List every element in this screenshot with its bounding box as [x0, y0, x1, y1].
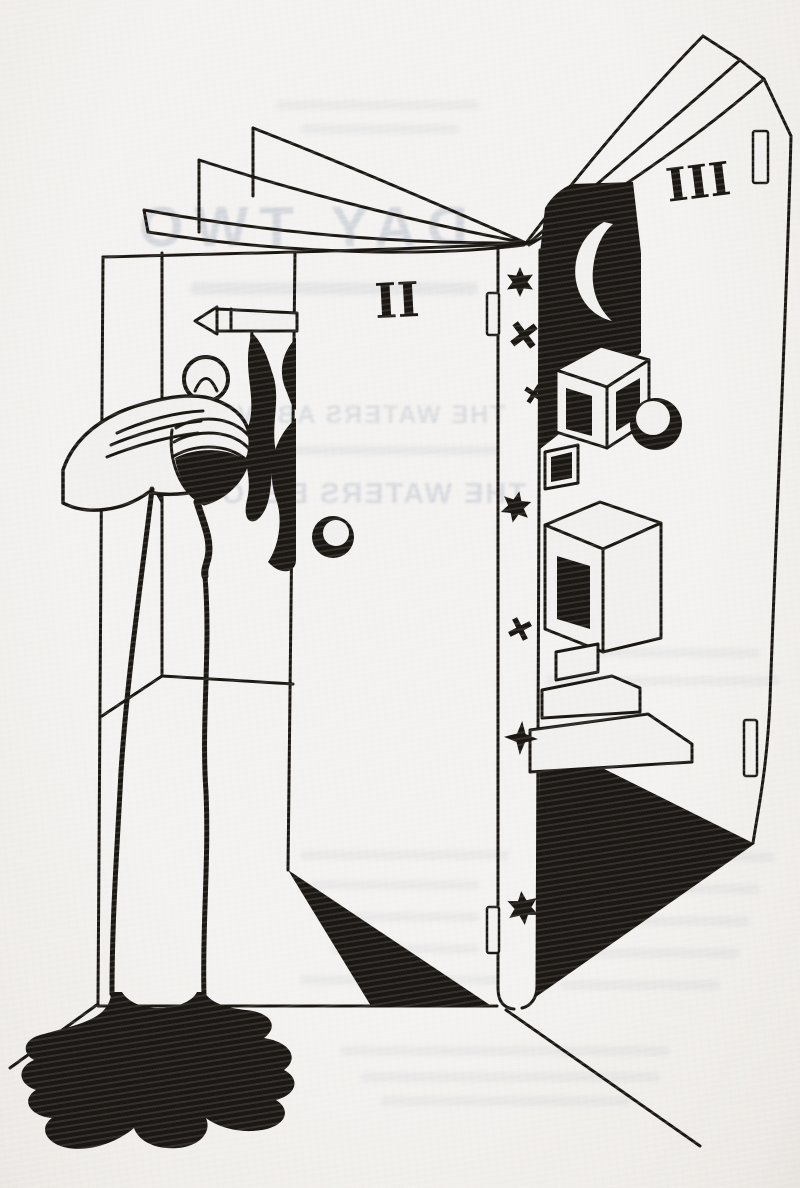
hinge	[487, 293, 499, 335]
window-sill	[162, 676, 293, 684]
middle-page-panel: II	[288, 272, 490, 1006]
cross-star-icon	[510, 321, 539, 350]
cross-star-icon	[507, 616, 533, 642]
ring-circle	[630, 398, 682, 450]
six-pointed-star-icon	[507, 890, 540, 927]
building-doorway	[557, 556, 590, 629]
right-page-night-panel: III	[530, 131, 791, 995]
buildings	[545, 346, 661, 652]
building-window	[566, 388, 592, 436]
floor-corner-diagonal	[506, 1010, 700, 1146]
hinge	[487, 907, 499, 953]
roman-numeral-three: III	[663, 151, 734, 212]
hinge	[744, 720, 757, 776]
scanned-book-page: DAY TWO THE WATERS ABOVE THE WATERS BELO…	[0, 0, 800, 1188]
book-page-edges	[103, 36, 791, 257]
liquid-drips	[112, 489, 209, 996]
ink-puddle	[21, 992, 294, 1149]
cup-liquid	[175, 450, 247, 503]
window-sill-return	[102, 676, 162, 716]
six-pointed-star-icon	[507, 267, 533, 297]
pouring-hand	[63, 357, 250, 510]
open-book-illustration: II III	[0, 0, 800, 1188]
right-drip	[204, 576, 207, 996]
middle-page-shadow-wedge	[288, 870, 490, 1006]
building-window	[551, 452, 572, 482]
left-page-window-panel	[63, 252, 297, 1002]
roman-numeral-two: II	[373, 272, 421, 330]
left-page-edge	[98, 257, 103, 1002]
left-drip	[112, 489, 152, 994]
rod-finial-icon	[195, 307, 217, 334]
hinge	[753, 131, 768, 183]
six-pointed-star-icon	[499, 488, 533, 525]
right-page-edge	[753, 136, 791, 843]
small-ring-circle	[312, 516, 354, 558]
book-spine	[487, 246, 540, 1009]
stepped-plinth	[530, 644, 692, 772]
